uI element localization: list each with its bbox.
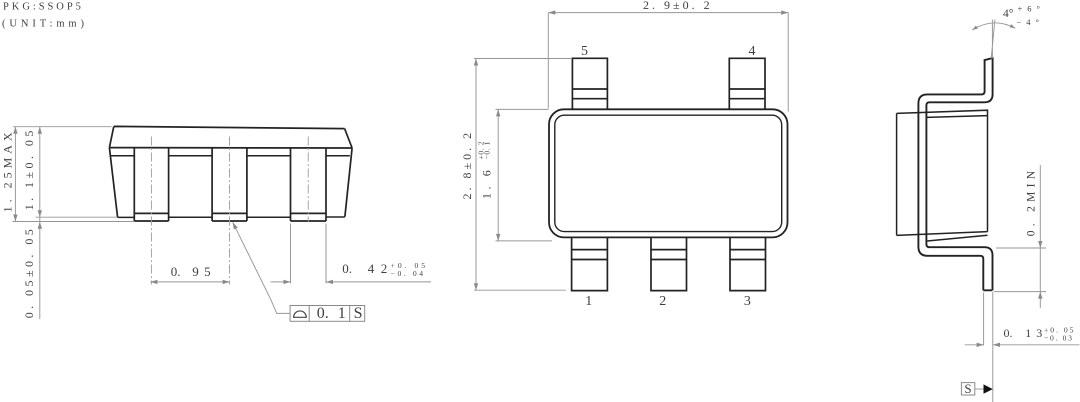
svg-text:3: 3: [744, 294, 751, 309]
svg-text:PKG:SSOP5: PKG:SSOP5: [3, 2, 84, 13]
svg-text:−4°: −4°: [1017, 17, 1044, 27]
svg-text:0.: 0.: [317, 305, 329, 322]
svg-text:1. 6: 1. 6: [480, 167, 494, 199]
svg-text:0.: 0.: [1004, 326, 1013, 340]
svg-text:2: 2: [659, 294, 666, 309]
svg-text:4: 4: [749, 44, 756, 59]
svg-text:1: 1: [585, 294, 592, 309]
svg-text:0.: 0.: [171, 264, 181, 279]
svg-text:2: 2: [381, 261, 388, 276]
svg-text:0. 05±0. 05: 0. 05±0. 05: [22, 226, 36, 319]
svg-text:1: 1: [1025, 326, 1031, 340]
svg-text:2. 8±0. 2: 2. 8±0. 2: [460, 130, 474, 200]
svg-text:5: 5: [581, 44, 588, 59]
svg-text:4°: 4°: [1003, 8, 1014, 20]
svg-text:1. 25MAX: 1. 25MAX: [1, 128, 15, 212]
svg-text:3: 3: [1036, 326, 1042, 340]
svg-text:1: 1: [338, 305, 346, 322]
svg-text:−0. 03: −0. 03: [1044, 334, 1074, 343]
svg-text:2. 9±0. 2: 2. 9±0. 2: [643, 0, 713, 12]
svg-text:0.: 0.: [342, 261, 352, 276]
svg-text:4: 4: [368, 261, 375, 276]
svg-text:1. 1±0. 05: 1. 1±0. 05: [22, 127, 36, 210]
svg-text:5: 5: [204, 264, 211, 279]
svg-text:0. 2MIN: 0. 2MIN: [1026, 167, 1038, 237]
svg-text:(UNIT:mm): (UNIT:mm): [2, 18, 88, 29]
svg-text:9: 9: [192, 264, 199, 279]
svg-text:+6°: +6°: [1018, 4, 1045, 14]
svg-text:S: S: [964, 381, 971, 396]
svg-text:S: S: [354, 305, 363, 322]
svg-text:−0. 1: −0. 1: [483, 141, 492, 160]
svg-text:−0. 04: −0. 04: [391, 269, 426, 278]
